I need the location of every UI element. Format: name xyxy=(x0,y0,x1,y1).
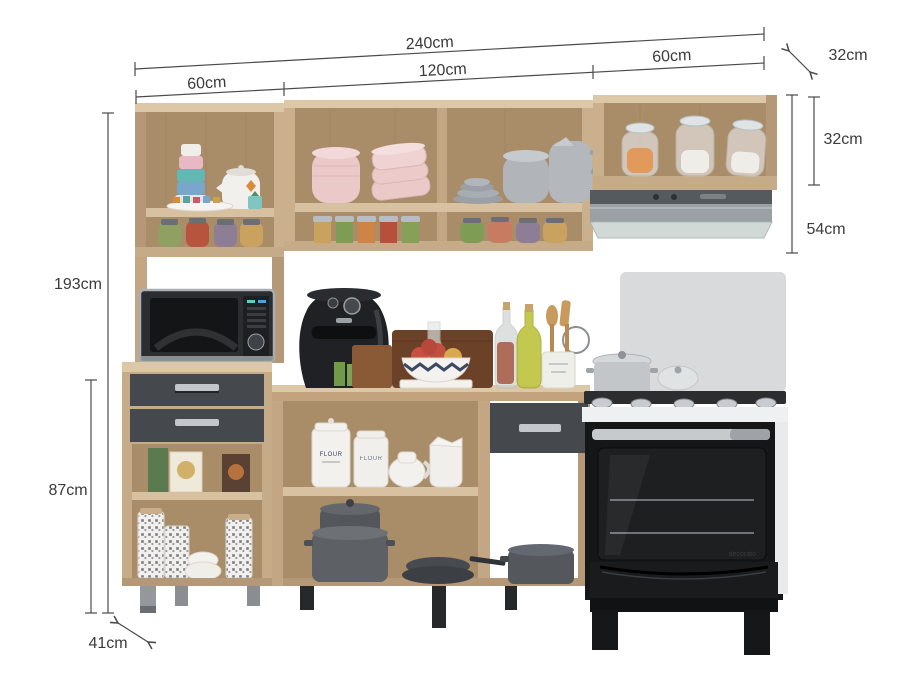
range-hood xyxy=(590,190,772,238)
decor-teal-cup xyxy=(248,196,262,209)
dim-label-total-height: 193cm xyxy=(54,276,102,293)
dim-label-middle-width: 120cm xyxy=(418,61,467,80)
stove-leg xyxy=(744,610,770,655)
base-legs-middle xyxy=(300,586,517,628)
dim-label-left-width: 60cm xyxy=(187,74,227,93)
base-legs-left xyxy=(140,586,260,613)
base-cabinet-left xyxy=(122,362,272,586)
flour-label-2: FLOUR xyxy=(360,456,383,462)
stove-leg xyxy=(592,610,618,650)
flour-label: FLOUR xyxy=(320,452,343,458)
dim-label-upper-depth: 32cm xyxy=(828,47,867,64)
cooktop-edge xyxy=(582,407,788,422)
middle-drawer xyxy=(490,403,588,453)
oven-drawer xyxy=(590,562,778,600)
oil-bottles xyxy=(495,302,541,388)
dim-label-upper-height: 32cm xyxy=(823,131,862,148)
oven-brand: decorato xyxy=(729,551,756,558)
oven-door: decorato xyxy=(598,448,766,560)
stove: decorato xyxy=(582,351,788,655)
dim-label-total-width: 240cm xyxy=(405,34,454,53)
dim-label-hood-height: 54cm xyxy=(806,221,845,238)
kitchen-set-diagram: FLOUR FLOUR xyxy=(0,0,900,675)
dim-label-right-width: 60cm xyxy=(652,47,692,66)
microwave xyxy=(140,290,274,362)
dim-label-base-height: 87cm xyxy=(48,482,87,499)
glass-storage-jars xyxy=(622,116,767,177)
product-dimension-diagram: FLOUR FLOUR xyxy=(0,0,900,675)
utensil-holder xyxy=(542,300,589,388)
dim-label-base-depth: 41cm xyxy=(88,635,127,652)
